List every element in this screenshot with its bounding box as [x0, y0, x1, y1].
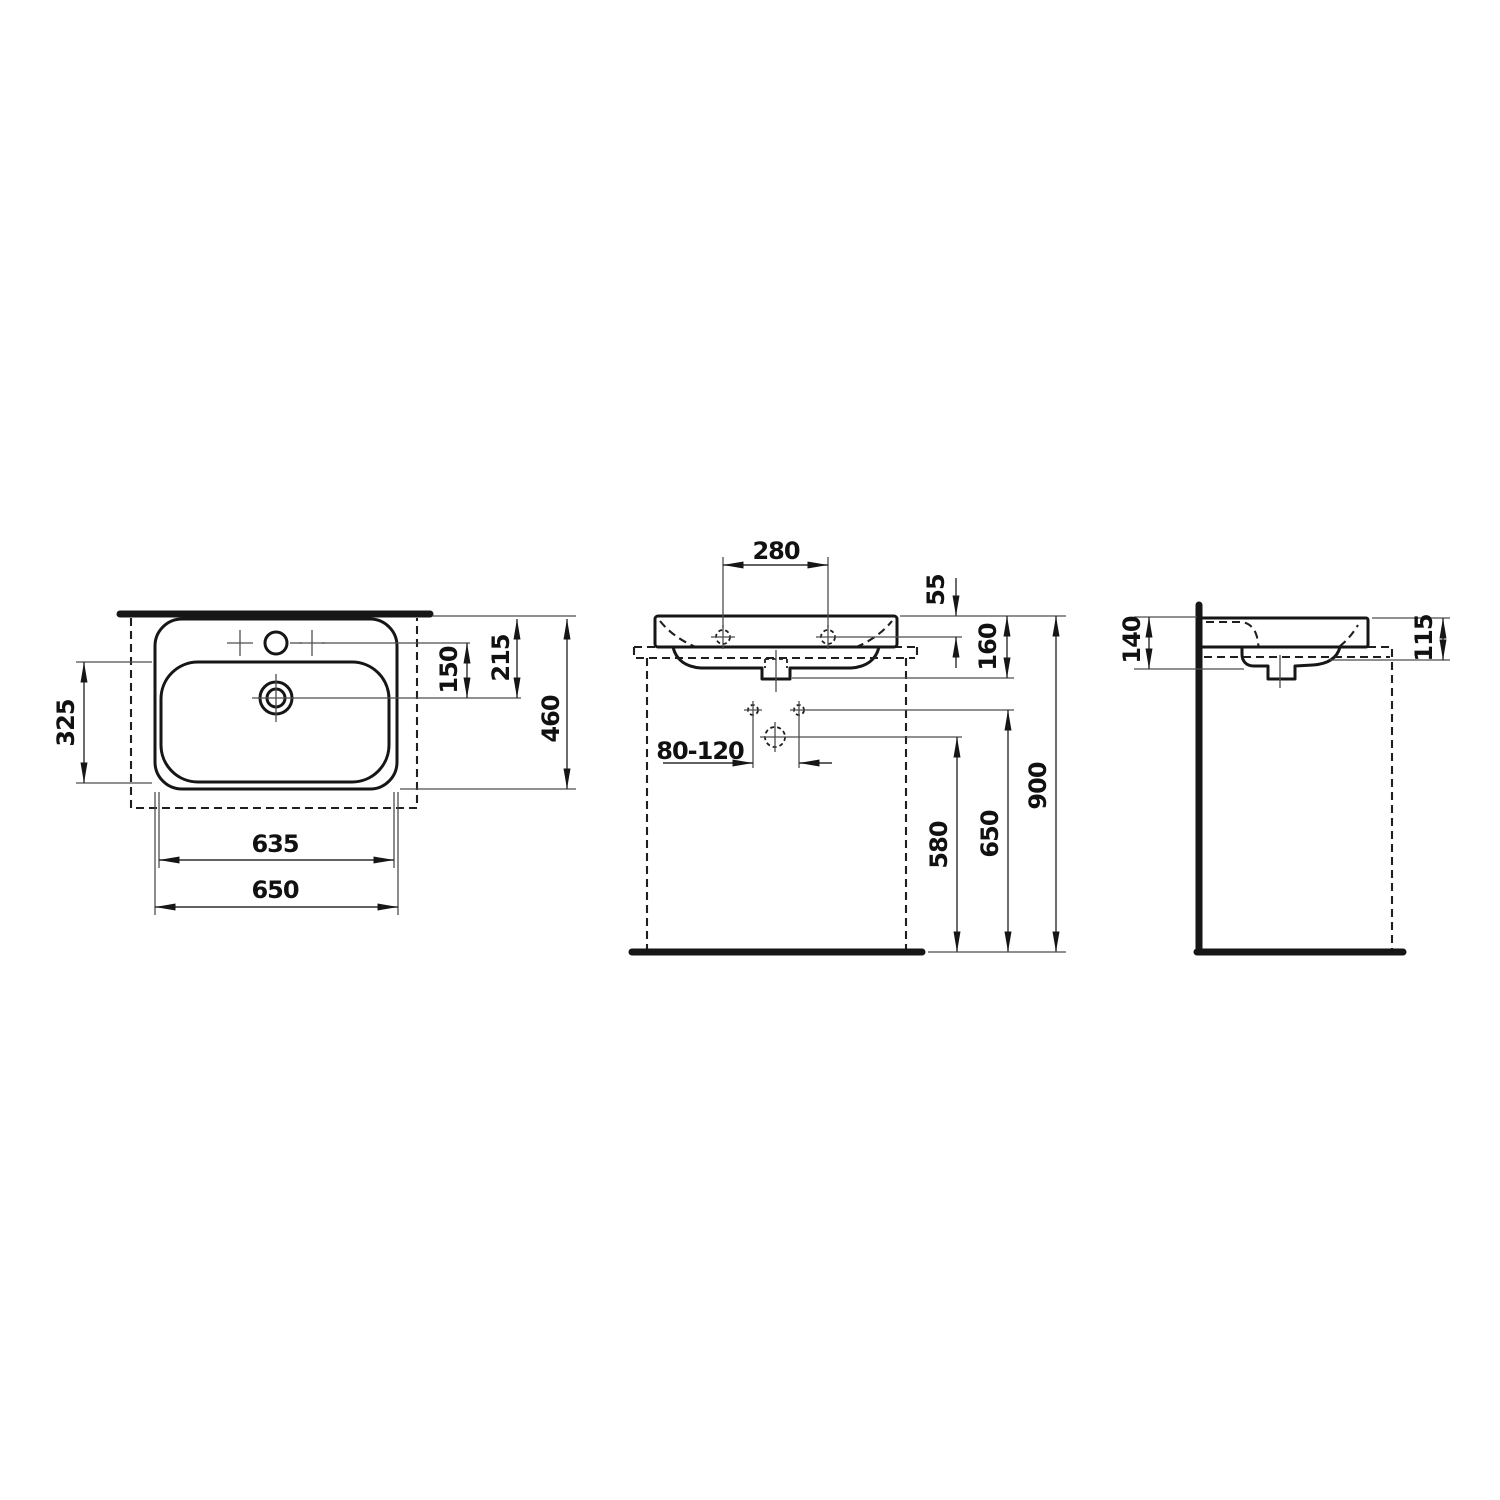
dim-label-215: 215: [487, 634, 515, 681]
dim-label-55: 55: [922, 574, 950, 606]
dim-label-650-width: 650: [251, 876, 298, 904]
washbasin-dimension-drawing: 325 150 215 460 635: [0, 0, 1500, 1500]
dim-label-580: 580: [925, 821, 953, 868]
dim-rim-to-drain: 215: [487, 619, 517, 698]
dim-label-460: 460: [537, 695, 565, 742]
side-view: 140 115: [1118, 605, 1450, 952]
supply-point-right: [790, 701, 1014, 768]
dim-label-325: 325: [52, 699, 80, 746]
dim-tap-spacing: 280: [723, 537, 828, 628]
dim-label-280: 280: [752, 537, 799, 565]
basin-rim-front: [655, 616, 897, 647]
dim-supply-height: 650: [976, 710, 1008, 952]
dim-trap-offset: 80-120: [656, 737, 832, 765]
supply-point-left: [744, 701, 762, 768]
dim-label-150: 150: [435, 646, 463, 693]
dim-rim-height: 900: [1024, 616, 1056, 952]
dim-bowl-depth: 325: [52, 662, 152, 783]
dim-label-900: 900: [1024, 762, 1052, 809]
drain-pipe-point: [760, 722, 962, 752]
top-view: 325 150 215 460 635: [52, 614, 576, 915]
basin-body-side: [1242, 647, 1340, 679]
dim-width-inner: 635: [159, 792, 394, 868]
front-view: 280 55 160 80-120 580 650: [632, 537, 1066, 952]
dim-rim-to-holes: 55: [922, 574, 956, 668]
dim-label-115: 115: [1410, 614, 1438, 661]
dim-label-80-120: 80-120: [656, 737, 744, 765]
console-hidden-outline-front: [634, 647, 917, 950]
technical-drawing-page: 325 150 215 460 635: [0, 0, 1500, 1500]
dim-label-140: 140: [1118, 616, 1146, 663]
dim-drain-height: 580: [925, 737, 957, 952]
dim-label-635: 635: [251, 830, 298, 858]
console-hidden-outline-side: [1368, 647, 1392, 950]
dim-label-650-height: 650: [976, 810, 1004, 857]
dim-label-160: 160: [974, 623, 1002, 670]
dim-tap-to-drain: 150: [435, 643, 467, 698]
